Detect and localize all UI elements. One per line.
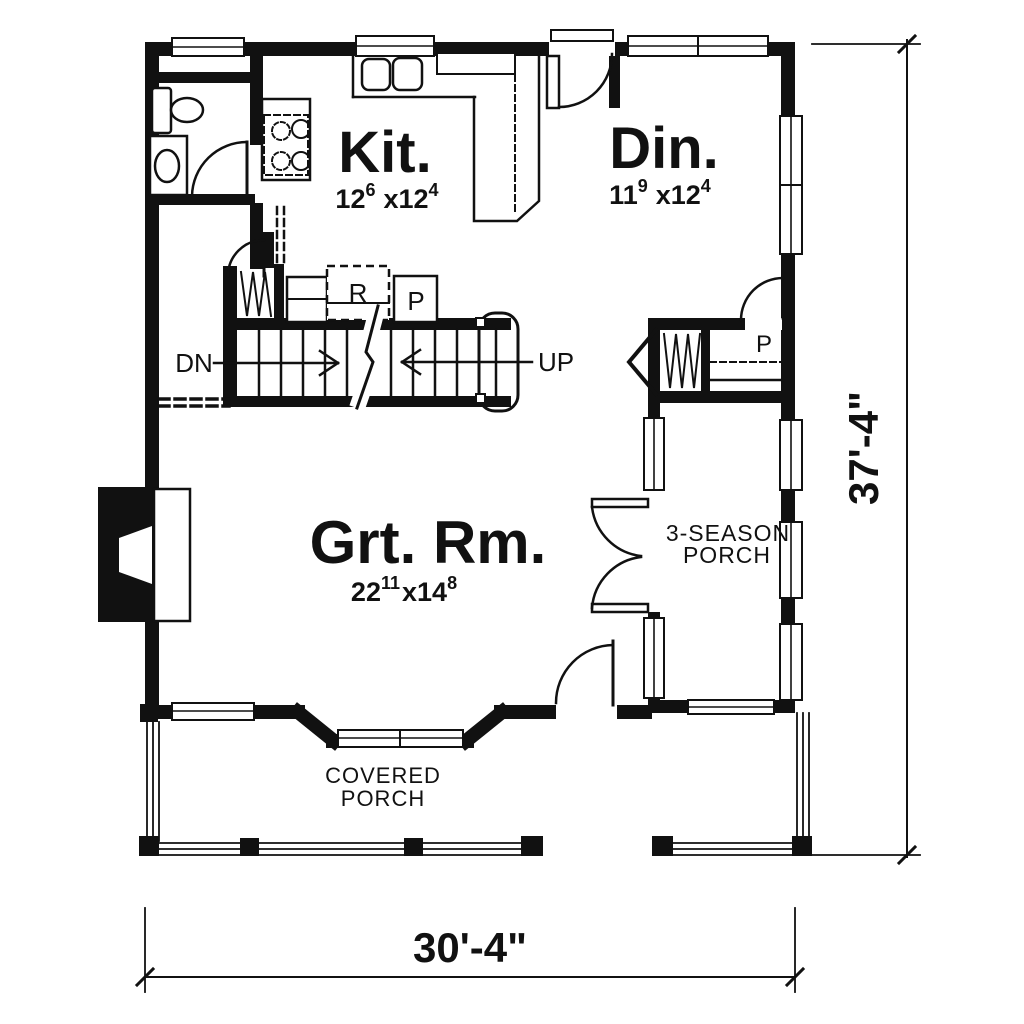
entry-door — [547, 30, 620, 108]
kitchen-dashed-lines — [277, 207, 284, 264]
hall-header-dashed — [159, 399, 229, 406]
covered-porch-label-2: PORCH — [341, 786, 425, 811]
dn-label: DN — [175, 348, 213, 378]
kitchen-pantry-label: P — [407, 286, 424, 316]
sink-counter — [353, 53, 515, 97]
kitchen-sink — [393, 58, 422, 90]
floor-plan: Kit. 126x124 Din. 119x124 Grt. Rm. 2211x… — [0, 0, 1024, 1024]
french-doors — [592, 499, 648, 612]
dining-north-window — [628, 36, 768, 56]
great-room-south-window — [172, 703, 254, 720]
pantry-door — [741, 278, 783, 320]
porch-south-window — [688, 700, 774, 714]
coat-closet-rod — [241, 272, 271, 316]
peninsula-counter — [474, 53, 539, 221]
entry-door-sill — [551, 30, 613, 41]
great-room-dims: 2211x148 — [351, 573, 457, 607]
counter-cabinet — [437, 53, 515, 74]
porch-door — [556, 641, 613, 705]
fireplace — [98, 487, 190, 622]
up-arrow — [402, 350, 532, 374]
kitchen-sink-window — [356, 36, 434, 56]
great-room-label: Grt. Rm. — [310, 509, 547, 576]
floor-plan-page: Kit. 126x124 Din. 119x124 Grt. Rm. 2211x… — [0, 0, 1024, 1024]
toilet — [152, 88, 203, 133]
season-porch-label-2: PORCH — [683, 542, 771, 568]
hall-closet-rod — [664, 334, 700, 388]
bathroom-door — [192, 142, 247, 196]
porch-west-window-2 — [644, 618, 664, 698]
width-dimension-label: 30'-4" — [413, 924, 527, 971]
kitchen-dims: 126x124 — [335, 180, 438, 214]
hearth — [154, 489, 190, 621]
refrigerator-label: R — [349, 278, 368, 308]
bay-window — [338, 730, 463, 747]
range-counter — [262, 99, 310, 180]
pantry-shelves — [710, 362, 783, 380]
kitchen-sink — [362, 59, 390, 90]
porch-west-window-1 — [644, 418, 664, 490]
hall-pantry-label: P — [756, 331, 772, 358]
depth-dimension-label: 37'-4" — [840, 391, 887, 505]
porch-east-window-1 — [780, 420, 802, 490]
sink-vanity — [150, 136, 187, 195]
dining-east-window — [780, 116, 802, 254]
pantry-hall-walls — [648, 318, 795, 403]
bath-window — [172, 38, 244, 56]
stair-counter — [287, 277, 327, 322]
covered-porch-label-1: COVERED — [325, 763, 441, 788]
kitchen-label: Kit. — [338, 120, 431, 185]
dining-dims: 119x124 — [609, 176, 711, 210]
porch-east-window-3 — [780, 624, 802, 700]
dining-label: Din. — [609, 116, 719, 181]
up-label: UP — [538, 347, 574, 377]
